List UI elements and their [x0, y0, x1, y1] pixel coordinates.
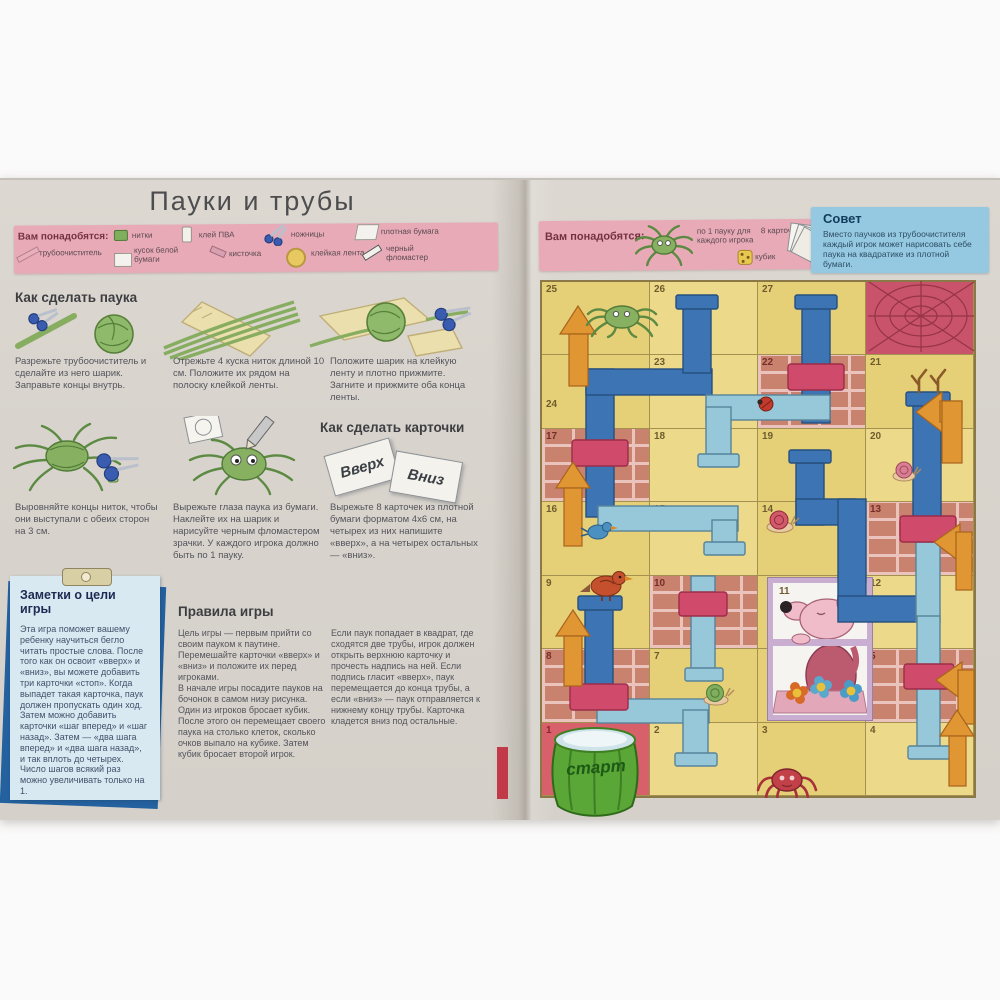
- antlers-icon: [912, 370, 945, 392]
- dice-icon: [737, 249, 753, 265]
- paper-piece-icon: [114, 253, 132, 267]
- book-spread: Пауки и трубы Вам понадобятся: нитки кле…: [0, 178, 1000, 820]
- material-item: трубоочиститель: [39, 249, 102, 258]
- rules-heading: Правила игры: [178, 604, 274, 619]
- material-item: клейкая лента: [311, 249, 364, 258]
- materials-label: Вам понадобятся:: [545, 230, 645, 243]
- game-board: 25 26 27 24 23 22 21 17 18 19 20 16 15 1…: [540, 280, 976, 798]
- material-item: клей ПВА: [199, 231, 235, 240]
- material-item: черный фломастер: [386, 245, 452, 263]
- spider-web-icon: [868, 281, 974, 352]
- rules-col2: Если паук попадает в квадрат, где сходят…: [331, 628, 483, 727]
- page-title: Пауки и трубы: [0, 186, 505, 217]
- spider-icon: [635, 224, 693, 267]
- step1-illustration: [12, 300, 152, 358]
- rules-col1: Цель игры — первым прийти со своим пауко…: [178, 628, 326, 760]
- material-item: кубик: [755, 253, 775, 262]
- step4-illustration: [12, 420, 167, 498]
- pipe-cleaner-icon: [16, 246, 40, 263]
- thread-spool-icon: [114, 230, 128, 241]
- right-page: Вам понадобятся: по 1 пауку для каждого …: [505, 180, 1000, 820]
- step5-text: Вырежьте глаза паука из бумаги. Наклейте…: [173, 502, 325, 561]
- board-overlay: [540, 280, 976, 798]
- snail-icon: [704, 685, 734, 706]
- material-item: нитки: [132, 232, 153, 241]
- materials-label: Вам понадобятся:: [18, 231, 109, 243]
- goal-note: Заметки о цели игры Эта игра поможет ваш…: [10, 576, 160, 800]
- material-item: по 1 пауку для каждого игрока: [697, 227, 759, 245]
- step3-illustration: [308, 294, 484, 360]
- note-heading: Заметки о цели игры: [20, 588, 145, 617]
- tip-heading: Совет: [823, 211, 862, 226]
- materials-strip-right: Вам понадобятся: по 1 пауку для каждого …: [539, 219, 811, 271]
- pipe-f: [679, 576, 727, 681]
- snail-icon: [767, 511, 799, 533]
- arrow-up-17: [556, 462, 590, 546]
- material-item: плотная бумага: [381, 228, 439, 237]
- green-spider-icon: [587, 306, 657, 337]
- glue-bottle-icon: [182, 226, 192, 242]
- step1-text: Разрежьте трубоочиститель и сделайте из …: [15, 356, 155, 392]
- tip-body: Вместо паучков из трубоочистителя каждый…: [823, 229, 979, 269]
- material-item: ножницы: [291, 231, 324, 240]
- note-body: Эта игра поможет вашему ребенку научитьс…: [20, 624, 148, 797]
- cards-text: Вырежьте 8 карточек из плотной бумаги фо…: [330, 502, 482, 561]
- material-item: кусок белой бумаги: [134, 246, 192, 264]
- tape-roll-icon: [286, 248, 306, 268]
- material-item: кисточка: [229, 250, 261, 259]
- how-cards-heading: Как сделать карточки: [320, 420, 464, 435]
- red-spider-icon: [758, 769, 816, 798]
- step5-illustration: [178, 416, 318, 496]
- brush-icon: [209, 245, 226, 258]
- book-photo: Пауки и трубы Вам понадобятся: нитки кле…: [0, 0, 1000, 1000]
- step4-text: Выровняйте концы ниток, чтобы они выступ…: [15, 502, 160, 538]
- card-down: Вниз: [389, 450, 463, 503]
- step2-text: Отрежьте 4 куска ниток длиной 10 см. Пол…: [173, 356, 325, 392]
- step2-illustration: [162, 296, 302, 360]
- scissors-icon: [264, 224, 288, 246]
- pipe-b: [698, 295, 844, 467]
- marker-icon: [362, 244, 383, 261]
- materials-strip-left: Вам понадобятся: нитки клей ПВА ножницы …: [14, 222, 498, 273]
- tip-box: Совет Вместо паучков из трубоочистителя …: [811, 207, 989, 273]
- step3-text: Положите шарик на клейкую ленту и плотно…: [330, 356, 482, 404]
- left-page: Пауки и трубы Вам понадобятся: нитки кле…: [0, 180, 505, 820]
- start-barrel: старт: [544, 724, 646, 820]
- paper-sheet-icon: [354, 224, 379, 240]
- clipboard-clip: [62, 568, 112, 586]
